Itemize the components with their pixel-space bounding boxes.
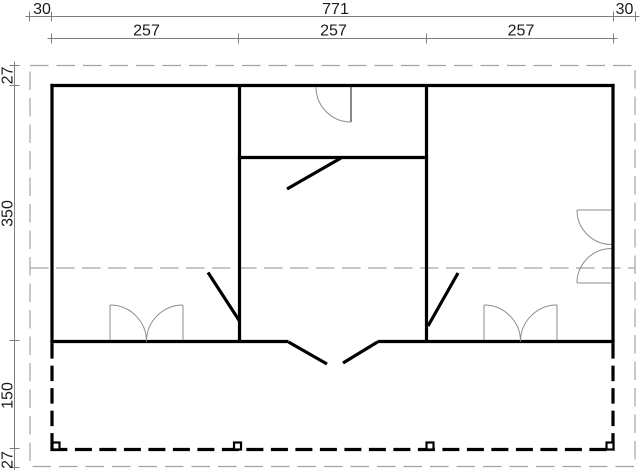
svg-text:30: 30 bbox=[616, 1, 634, 18]
svg-text:771: 771 bbox=[322, 1, 349, 18]
svg-text:30: 30 bbox=[33, 1, 51, 18]
svg-text:257: 257 bbox=[508, 23, 535, 40]
svg-text:257: 257 bbox=[320, 23, 347, 40]
svg-text:257: 257 bbox=[133, 23, 160, 40]
svg-text:350: 350 bbox=[0, 200, 17, 227]
svg-text:27: 27 bbox=[0, 451, 17, 469]
svg-text:27: 27 bbox=[0, 67, 17, 85]
svg-text:150: 150 bbox=[0, 382, 17, 409]
